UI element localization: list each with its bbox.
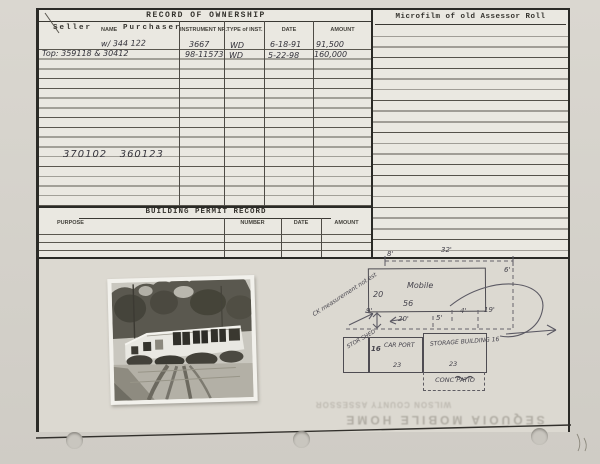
- divider: [39, 21, 371, 22]
- card-top-section: RECORD OF OWNERSHIP Seller NAME Purchase…: [39, 10, 568, 259]
- margin-pencil-marks: [577, 434, 586, 451]
- parcel-numbers-note: 370102 360123: [63, 149, 164, 160]
- column-line: [281, 218, 282, 257]
- microfilm-ruled-lines: [373, 26, 568, 254]
- sketch-length-label: 56: [403, 299, 413, 308]
- sketch-mobile-label: Mobile: [407, 281, 433, 290]
- sketch-patio-label: CONC PATIO: [432, 376, 478, 384]
- sketch-carport-dim-16: 16: [371, 345, 381, 353]
- ownership-ruled-lines: [39, 40, 371, 206]
- column-line: [264, 21, 265, 206]
- microfilm-title: Microfilm of old Assessor Roll: [373, 13, 568, 21]
- sketch-dim-32: 32': [441, 246, 452, 254]
- entry-amount-1: 91,500: [316, 40, 344, 49]
- punch-hole: [293, 431, 310, 448]
- property-photo-image: [111, 279, 253, 401]
- sketch-storage-dim-23: 23: [449, 360, 457, 368]
- sketch-dim-19: 19': [484, 306, 495, 314]
- sketch-dim-5: 5': [436, 314, 442, 322]
- microfilm-panel: Microfilm of old Assessor Roll: [373, 10, 568, 257]
- col-number: NUMBER: [225, 220, 280, 226]
- col-permit-date: DATE: [282, 220, 320, 226]
- ownership-title: RECORD OF OWNERSHIP: [39, 11, 373, 20]
- sketch-dim-8: 8': [387, 250, 393, 258]
- entry-date-2: 5-22-98: [268, 51, 299, 60]
- sketch-width-label: 20: [373, 290, 383, 299]
- col-permit-amount: AMOUNT: [322, 220, 371, 226]
- column-line: [179, 21, 180, 206]
- bleedthrough-text-1: SEQUOIA MOBILE HOME: [338, 413, 550, 427]
- sketch-dim-4: 4': [460, 307, 466, 315]
- column-line: [224, 218, 225, 257]
- entry-date-1: 6-18-91: [270, 40, 301, 49]
- permit-title: BUILDING PERMIT RECORD: [39, 208, 373, 216]
- entry-type-2: WD: [229, 51, 243, 60]
- punch-hole: [531, 428, 548, 445]
- entry-instrument-2: 98-11573: [185, 50, 224, 59]
- divider: [375, 24, 566, 25]
- sketch-carport-label: CAR PORT: [384, 343, 412, 350]
- ownership-panel: RECORD OF OWNERSHIP Seller NAME Purchase…: [39, 10, 373, 257]
- entry-purchaser-1: w/ 344 122: [101, 39, 146, 49]
- entry-seller-2: Top: 359118 & 30412: [42, 49, 128, 58]
- punch-hole: [66, 432, 83, 449]
- sketch-dim-9: 9': [366, 307, 372, 315]
- column-line: [224, 21, 225, 206]
- entry-instrument-1: 3667: [189, 40, 209, 49]
- sketch-mobile-home-outline: [368, 268, 486, 313]
- sketch-dim-6: 6': [504, 266, 510, 274]
- property-photo: [107, 275, 257, 405]
- photo-driveway: [114, 361, 254, 401]
- col-instrument-nr: INSTRUMENT NR.: [180, 27, 224, 33]
- column-line: [313, 21, 314, 206]
- sketch-dim-20: 20': [398, 315, 409, 323]
- col-name: NAME: [101, 27, 117, 33]
- col-date: DATE: [265, 27, 313, 33]
- divider: [79, 218, 331, 219]
- col-seller: Seller: [53, 24, 92, 32]
- col-purpose: PURPOSE: [57, 220, 84, 226]
- col-type-of-inst: TYPE of INST.: [225, 27, 264, 33]
- sketch-carport-dim-23: 23: [393, 361, 401, 369]
- column-line: [321, 218, 322, 257]
- scanned-assessor-card-page: RECORD OF OWNERSHIP Seller NAME Purchase…: [0, 0, 600, 464]
- entry-amount-2: 160,000: [314, 50, 347, 59]
- bleedthrough-text-2: WILSON COUNTY ASSESSOR: [308, 400, 458, 409]
- entry-type-1: WD: [230, 41, 244, 50]
- col-purchaser: Purchaser: [123, 24, 182, 32]
- col-amount: AMOUNT: [314, 27, 371, 33]
